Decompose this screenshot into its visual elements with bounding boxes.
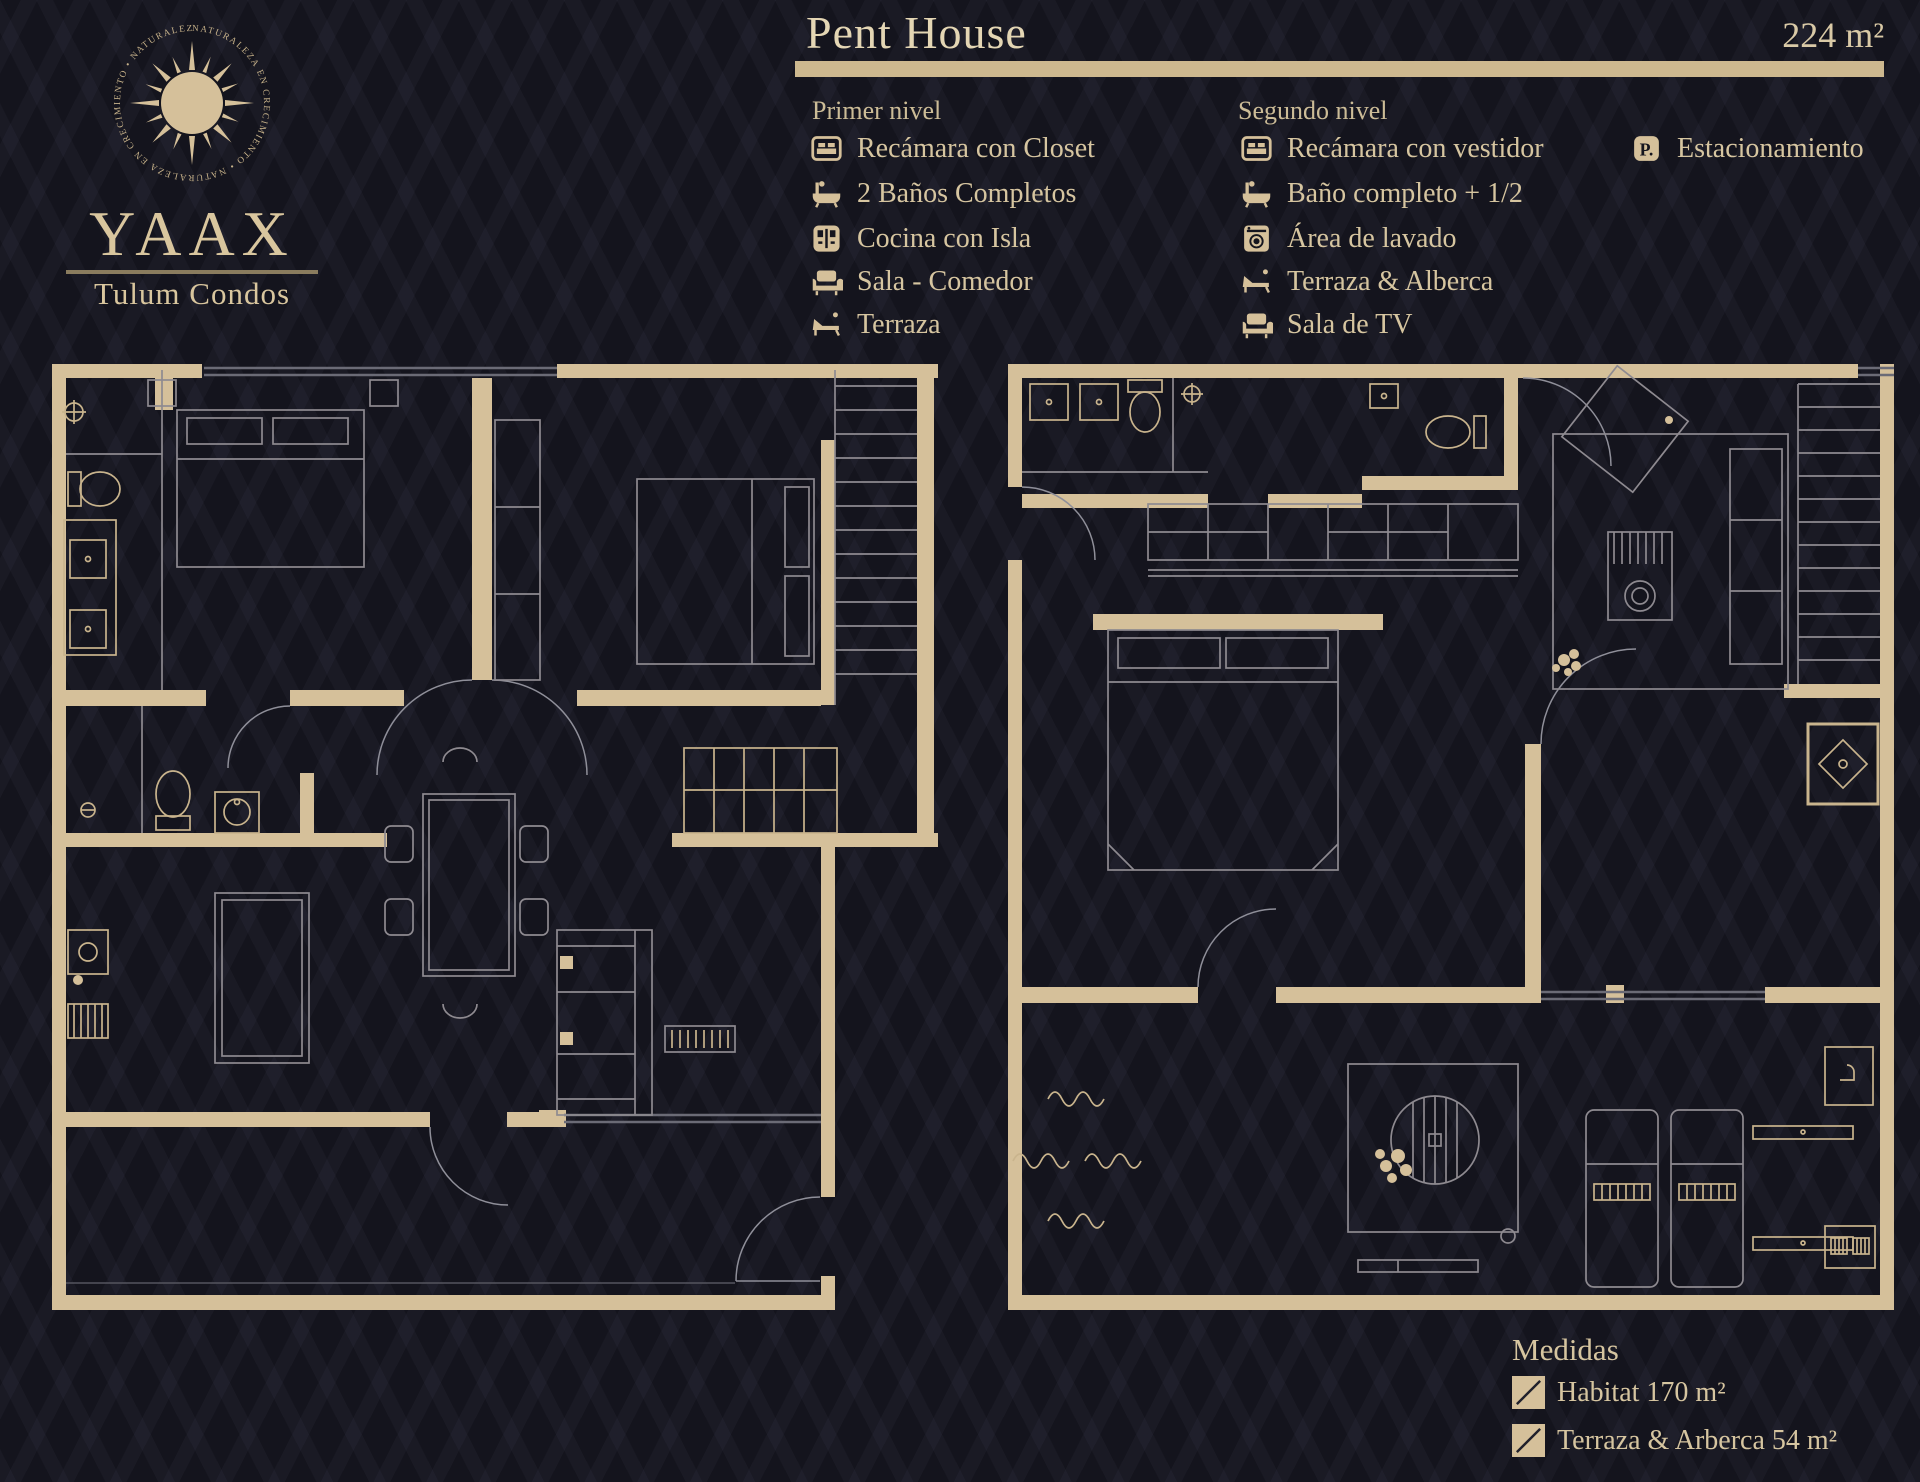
feature-item: Recámara con vestidor [1240,132,1544,165]
legend-label: Terraza & Arberca 54 m² [1557,1425,1837,1457]
feature-item: P. Estacionamiento [1630,132,1864,165]
total-area-label: 224 m² [1700,14,1884,56]
brochure-page: { "brand": { "name": "YAAX", "subtitle":… [0,0,1920,1482]
habitat-swatch-icon [1512,1376,1545,1409]
terraza-swatch-icon [1512,1424,1545,1457]
bed-icon [1240,132,1273,165]
feature-label: 2 Baños Completos [857,178,1076,210]
feature-label: Recámara con vestidor [1287,133,1544,165]
svg-text:P.: P. [1640,139,1654,159]
brand-logo: NATURALEZA EN CRECIMIENTO • NATURALEZA E… [58,10,326,312]
feature-label: Estacionamiento [1677,133,1864,165]
legend-row: Habitat 170 m² [1512,1376,1726,1409]
brand-subtitle: Tulum Condos [58,276,326,312]
page-title: Pent House [806,6,1027,59]
title-rule [795,61,1884,77]
feature-label: Área de lavado [1287,223,1456,255]
feature-item: Sala de TV [1240,308,1412,341]
feature-label: Cocina con Isla [857,223,1031,255]
feature-label: Baño completo + 1/2 [1287,178,1523,210]
segundo-nivel-floorplan [1008,364,1908,1314]
feature-item: Terraza & Alberca [1240,265,1493,298]
brand-name: YAAX [58,202,326,266]
bed-icon [810,132,843,165]
primer-nivel-floorplan [52,364,952,1314]
kitchen-icon [810,222,843,255]
sofa-icon [810,265,843,298]
feature-item: Terraza [810,308,941,341]
legend-label: Habitat 170 m² [1557,1377,1726,1409]
level2-label: Segundo nivel [1238,96,1388,126]
feature-item: Baño completo + 1/2 [1240,177,1523,210]
lounge-icon [1240,265,1273,298]
feature-item: Área de lavado [1240,222,1456,255]
washer-icon [1240,222,1273,255]
bath-icon [1240,177,1273,210]
sun-logo-icon: NATURALEZA EN CRECIMIENTO • NATURALEZA E… [97,10,287,195]
legend-row: Terraza & Arberca 54 m² [1512,1424,1837,1457]
feature-label: Recámara con Closet [857,133,1095,165]
level1-label: Primer nivel [812,96,941,126]
sofa-icon [1240,308,1273,341]
feature-item: 2 Baños Completos [810,177,1076,210]
feature-label: Terraza [857,309,941,341]
brand-rule [66,270,318,274]
feature-label: Terraza & Alberca [1287,266,1493,298]
bath-icon [810,177,843,210]
feature-item: Cocina con Isla [810,222,1031,255]
feature-label: Sala de TV [1287,309,1412,341]
feature-label: Sala - Comedor [857,266,1033,298]
feature-item: Recámara con Closet [810,132,1095,165]
feature-item: Sala - Comedor [810,265,1033,298]
parking-icon: P. [1630,132,1663,165]
legend-title: Medidas [1512,1332,1619,1368]
lounge-icon [810,308,843,341]
